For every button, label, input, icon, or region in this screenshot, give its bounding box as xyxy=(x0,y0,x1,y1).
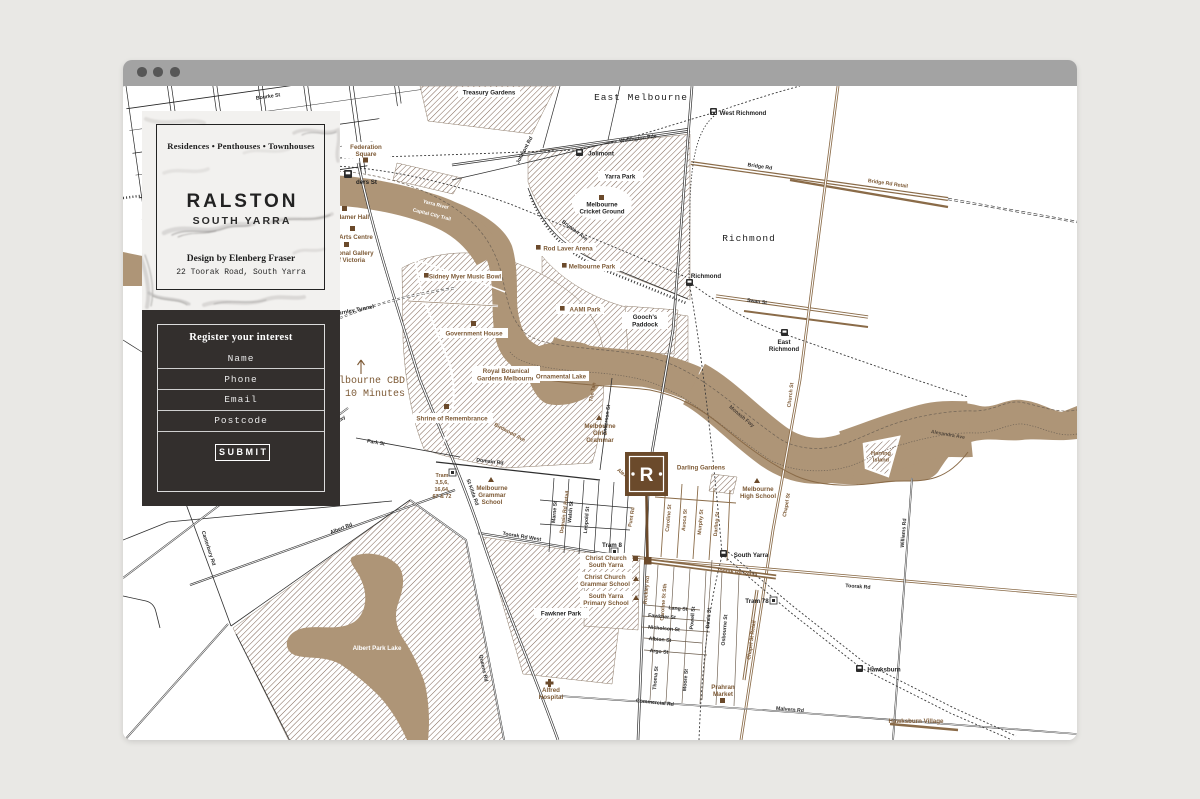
svg-text:Melbourne: Melbourne xyxy=(742,486,774,493)
svg-text:Gooch's: Gooch's xyxy=(633,314,658,321)
svg-text:Government House: Government House xyxy=(445,331,503,338)
svg-text:South Yarra: South Yarra xyxy=(589,593,624,600)
svg-text:Richmond: Richmond xyxy=(722,233,776,244)
svg-text:Jolimont: Jolimont xyxy=(588,151,614,158)
svg-text:Gardens Melbourne: Gardens Melbourne xyxy=(477,376,536,383)
svg-text:High School: High School xyxy=(740,493,776,500)
svg-text:Yarra Park: Yarra Park xyxy=(605,174,636,181)
svg-text:AAMI Park: AAMI Park xyxy=(570,307,602,314)
svg-text:Arts Centre: Arts Centre xyxy=(339,234,373,241)
svg-text:Albert Park Lake: Albert Park Lake xyxy=(353,645,402,652)
svg-text:Sidney Myer Music Bowl: Sidney Myer Music Bowl xyxy=(429,274,501,281)
svg-text:Hawksburn Village: Hawksburn Village xyxy=(889,718,944,725)
svg-text:Christ Church: Christ Church xyxy=(584,574,625,581)
svg-text:Fawkner Park: Fawkner Park xyxy=(541,611,582,618)
svg-text:Federation: Federation xyxy=(350,144,382,151)
svg-text:3,5,6,: 3,5,6, xyxy=(435,480,449,486)
svg-text:Tram 78: Tram 78 xyxy=(745,598,769,605)
svg-text:ders St: ders St xyxy=(356,179,377,186)
svg-text:Cricket Ground: Cricket Ground xyxy=(579,209,624,216)
svg-text:67 & 72: 67 & 72 xyxy=(433,494,452,500)
svg-text:Prahran: Prahran xyxy=(711,684,735,691)
svg-text:Treasury Gardens: Treasury Gardens xyxy=(463,90,516,97)
svg-text:South Yarra: South Yarra xyxy=(734,552,769,559)
svg-text:Melbourne Park: Melbourne Park xyxy=(569,264,616,271)
svg-text:Melbourne: Melbourne xyxy=(476,485,508,492)
svg-text:Herring: Herring xyxy=(871,451,891,457)
svg-text:Richmond: Richmond xyxy=(691,273,721,280)
svg-text:East: East xyxy=(777,339,790,346)
svg-text:Richmond: Richmond xyxy=(769,346,799,353)
svg-text:Hamer Hall: Hamer Hall xyxy=(337,214,370,221)
svg-text:Rod Laver Arena: Rod Laver Arena xyxy=(543,246,593,253)
svg-text:10 Minutes: 10 Minutes xyxy=(345,388,405,400)
svg-text:Primary School: Primary School xyxy=(583,600,629,607)
svg-text:Alfred: Alfred xyxy=(542,687,560,694)
svg-text:Market: Market xyxy=(713,691,733,698)
svg-text:Christ Church: Christ Church xyxy=(585,555,626,562)
svg-text:Darling Gardens: Darling Gardens xyxy=(677,465,726,472)
svg-text:School: School xyxy=(482,499,503,506)
svg-text:Grammar: Grammar xyxy=(478,492,506,499)
svg-text:R: R xyxy=(640,465,654,486)
svg-text:South Yarra: South Yarra xyxy=(589,562,624,569)
svg-text:West Richmond: West Richmond xyxy=(720,110,767,117)
svg-text:Paddock: Paddock xyxy=(632,322,658,329)
svg-text:Ornamental Lake: Ornamental Lake xyxy=(536,374,587,381)
svg-text:Square: Square xyxy=(356,151,378,158)
svg-text:Melbourne: Melbourne xyxy=(584,423,616,430)
svg-text:Melbourne: Melbourne xyxy=(586,202,618,209)
svg-text:Shrine of Remembrance: Shrine of Remembrance xyxy=(416,416,488,423)
svg-text:Grammar: Grammar xyxy=(586,437,614,444)
svg-text:Island: Island xyxy=(873,458,890,464)
svg-text:Tram: Tram xyxy=(436,473,449,479)
svg-text:Grammar School: Grammar School xyxy=(580,581,630,588)
svg-text:Hawksburn: Hawksburn xyxy=(867,667,901,674)
svg-text:Royal Botanical: Royal Botanical xyxy=(483,368,530,375)
svg-text:16,64,: 16,64, xyxy=(435,487,450,493)
svg-text:East Melbourne: East Melbourne xyxy=(594,92,688,103)
svg-text:Hospital: Hospital xyxy=(539,694,564,701)
